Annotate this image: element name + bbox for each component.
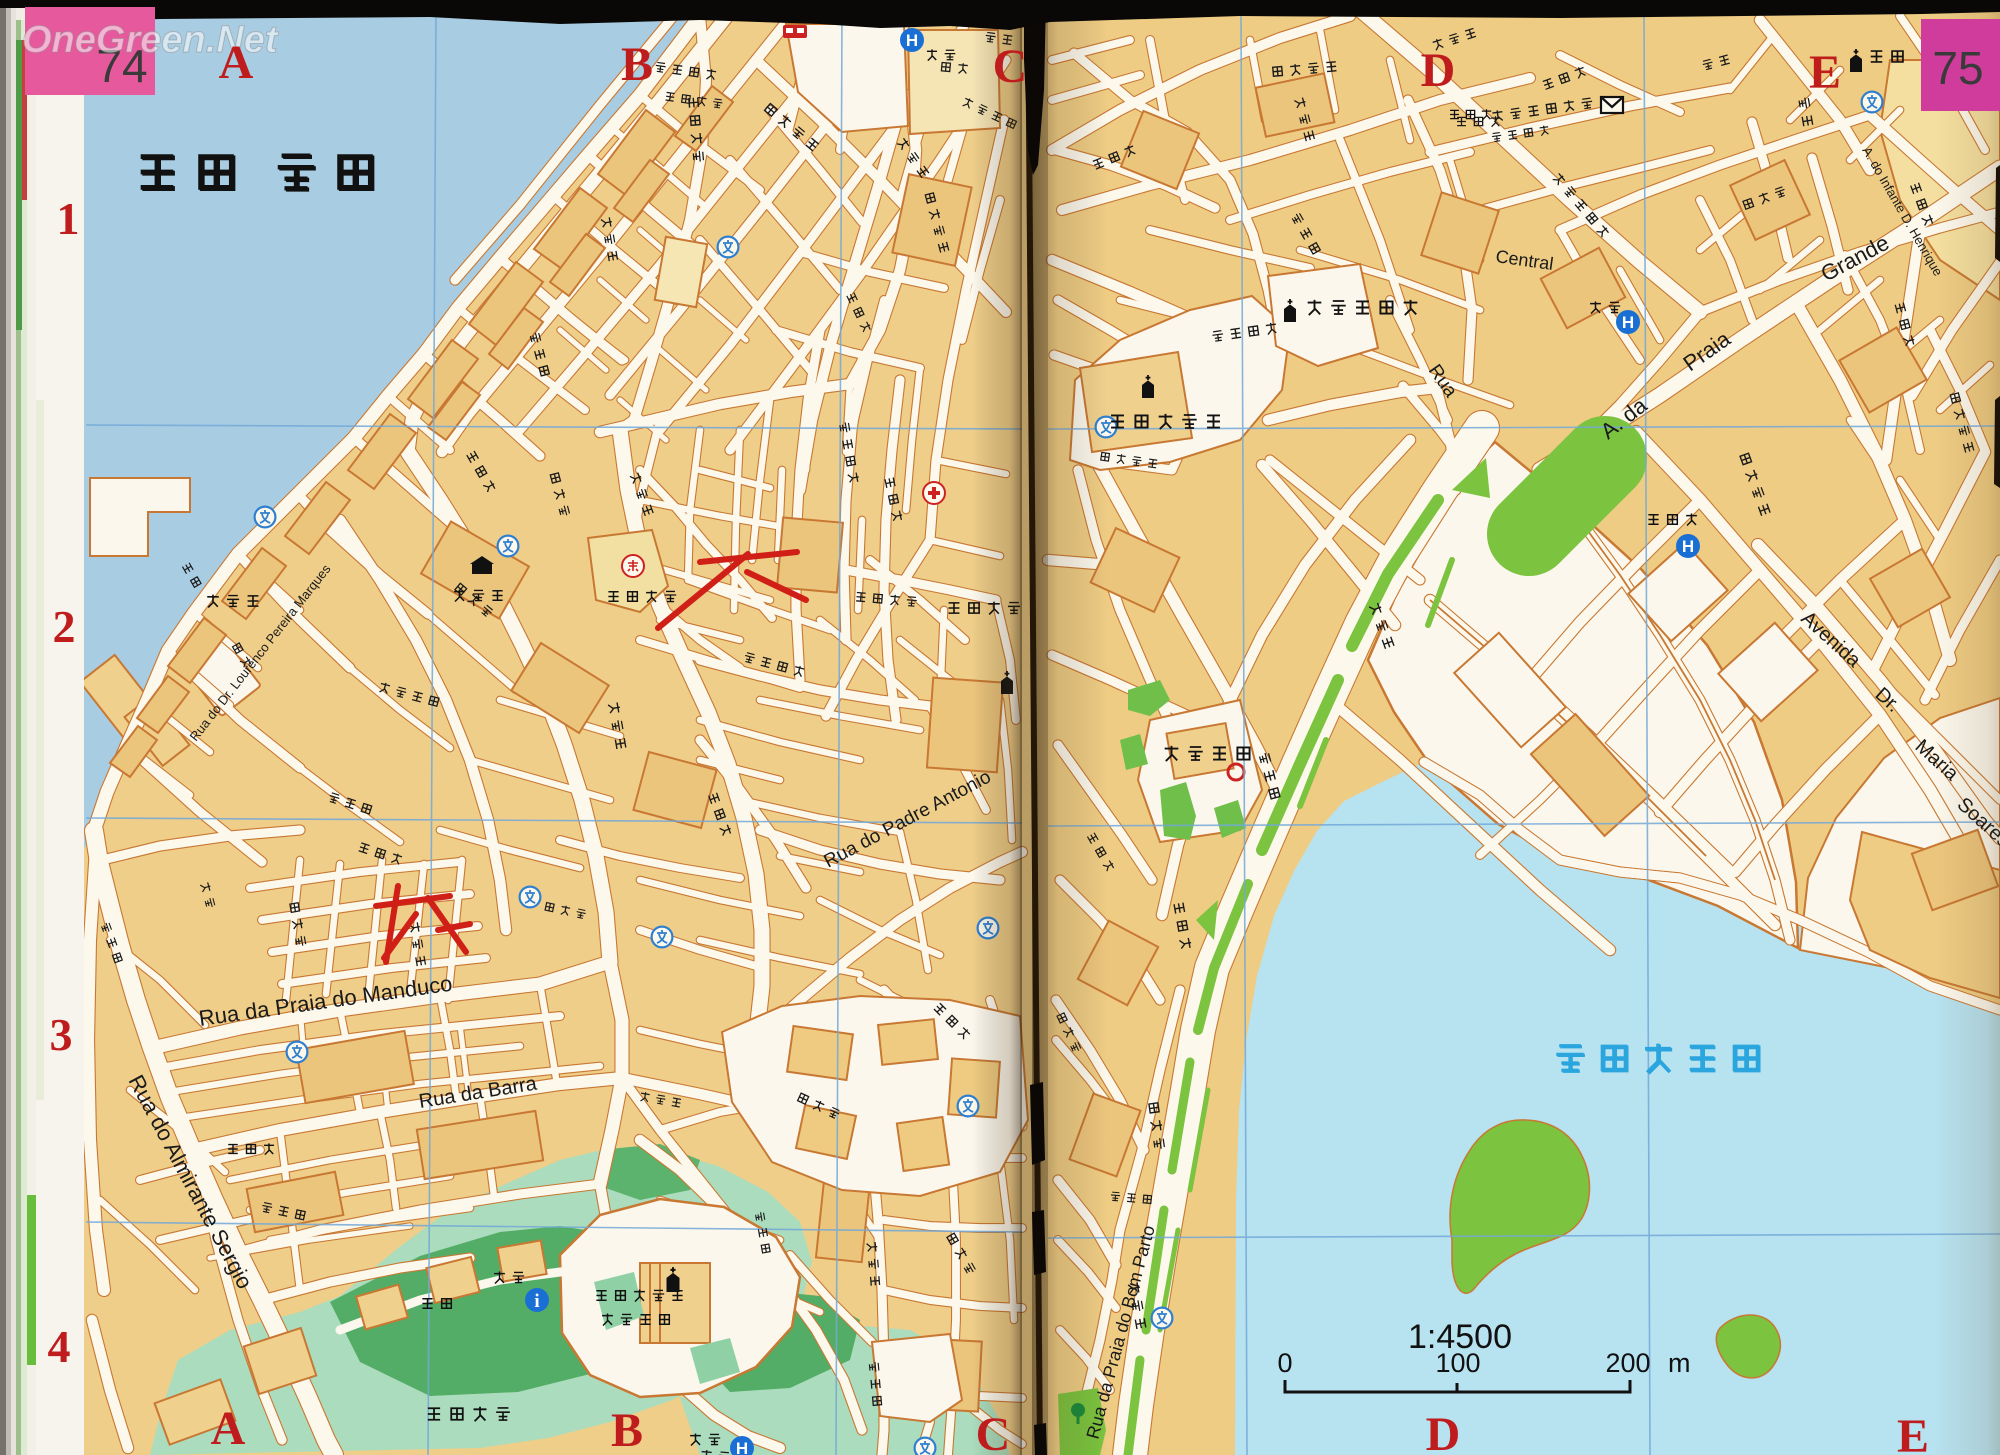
svg-text:H: H (906, 31, 918, 50)
svg-text:C: C (993, 40, 1028, 93)
svg-text:200: 200 (1605, 1348, 1650, 1378)
svg-text:m: m (1668, 1348, 1691, 1378)
svg-text:E: E (1897, 1410, 1929, 1455)
svg-text:1: 1 (57, 193, 80, 244)
svg-text:100: 100 (1435, 1348, 1480, 1378)
svg-text:B: B (611, 1404, 643, 1455)
svg-text:C: C (976, 1408, 1011, 1455)
svg-text:H: H (1682, 537, 1694, 556)
svg-text:D: D (1426, 1408, 1461, 1455)
svg-text:2: 2 (53, 601, 76, 652)
svg-text:4: 4 (48, 1321, 71, 1372)
svg-text:B: B (621, 38, 653, 91)
svg-text:3: 3 (50, 1009, 73, 1060)
svg-text:H: H (736, 1439, 748, 1455)
svg-text:0: 0 (1277, 1348, 1292, 1378)
svg-text:A: A (219, 36, 254, 89)
svg-text:D: D (1421, 44, 1456, 97)
svg-text:A: A (211, 1402, 246, 1455)
svg-text:75: 75 (1932, 42, 1983, 94)
svg-text:H: H (1622, 313, 1634, 332)
svg-text:E: E (1809, 46, 1841, 99)
svg-text:i: i (534, 1291, 539, 1312)
